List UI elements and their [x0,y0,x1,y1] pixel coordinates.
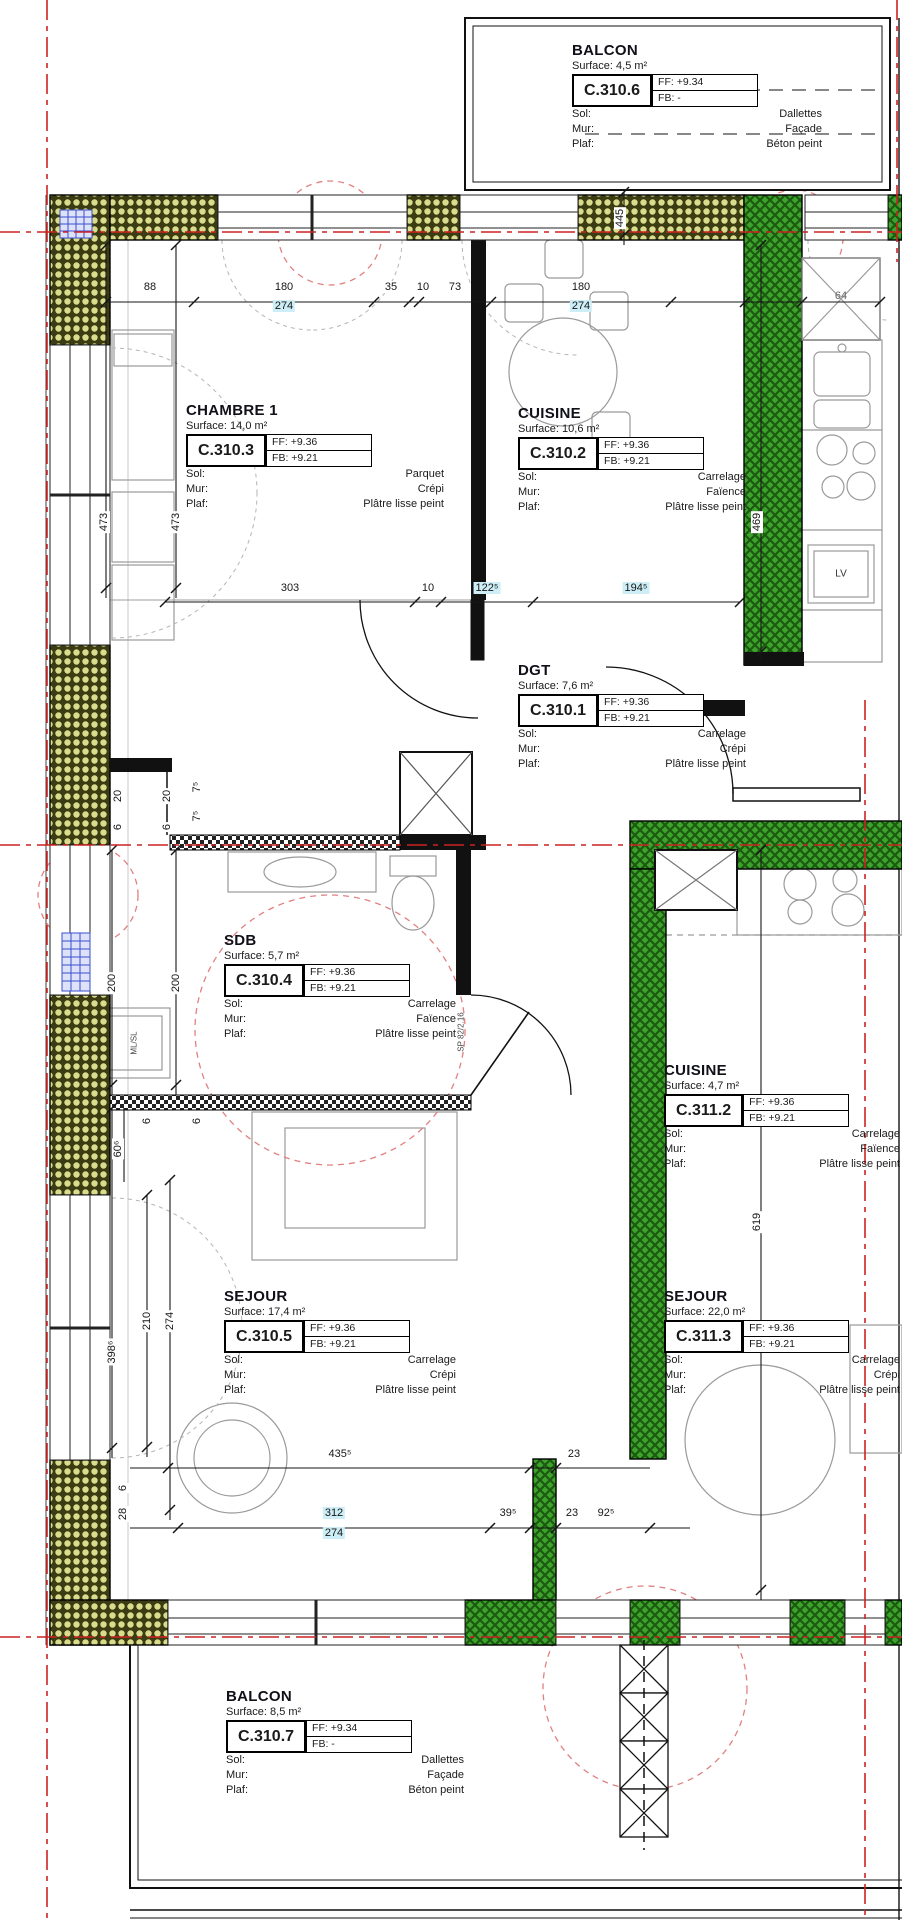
room-card-sdb: SDB Surface: 5,7 m² C.310.4 FF: +9.36FB:… [224,932,456,1042]
dim-left: 274 [164,1310,176,1332]
dim-left: 60⁶ [112,1139,124,1160]
mur-label: Mur: [224,1012,246,1027]
room-surface: Surface: 22,0 m² [664,1306,900,1318]
plaf-value: Béton peint [408,1783,464,1798]
plaf-value: Plâtre lisse peint [819,1383,900,1398]
room-surface: Surface: 14,0 m² [186,420,444,432]
dim-left: 6 [117,1483,129,1493]
mur-label: Mur: [664,1368,686,1383]
room-card-dgt: DGT Surface: 7,6 m² C.310.1 FF: +9.36FB:… [518,662,746,772]
dim-bottom-lower: 23 [564,1507,580,1519]
plaf-label: Plaf: [224,1027,246,1042]
dim-right: 469 [751,511,763,533]
room-card-cuisine-311: CUISINE Surface: 4,7 m² C.311.2 FF: +9.3… [664,1062,900,1172]
room-card-sejour-310: SEJOUR Surface: 17,4 m² C.310.5 FF: +9.3… [224,1288,456,1398]
dim-top: 180 [570,281,592,293]
dim-top: 88 [142,281,158,293]
room-levels: FF: +9.36FB: +9.21 [304,1320,410,1353]
room-code: C.310.7 [226,1720,306,1753]
washer-label: ML/SL [130,1031,139,1054]
room-levels: FF: +9.34FB: - [652,74,758,107]
room-card-cuisine-310: CUISINE Surface: 10,6 m² C.310.2 FF: +9.… [518,405,746,515]
sol-label: Sol: [186,467,205,482]
dim-left: 6 [141,1116,153,1126]
mur-value: Faïence [860,1142,900,1157]
mur-label: Mur: [224,1368,246,1383]
sol-label: Sol: [664,1353,683,1368]
dim-top: 180 [273,281,295,293]
room-name: SEJOUR [224,1288,456,1305]
room-name: DGT [518,662,746,679]
sol-label: Sol: [664,1127,683,1142]
dim-right: 619 [751,1211,763,1233]
room-card-balcon-bottom: BALCON Surface: 8,5 m² C.310.7 FF: +9.34… [226,1688,464,1798]
plaf-value: Plâtre lisse peint [363,497,444,512]
room-levels: FF: +9.36FB: +9.21 [743,1320,849,1353]
room-surface: Surface: 10,6 m² [518,423,746,435]
room-name: CUISINE [664,1062,900,1079]
room-name: CHAMBRE 1 [186,402,444,419]
sol-label: Sol: [518,470,537,485]
dim-top: 73 [447,281,463,293]
dishwasher-label: LV [835,569,847,580]
mur-value: Faïence [706,485,746,500]
plaf-value: Plâtre lisse peint [375,1027,456,1042]
dim-bottom-upper: 435⁵ [327,1448,354,1460]
room-surface: Surface: 8,5 m² [226,1706,464,1718]
dim-bottom-lower: 274 [323,1527,345,1539]
room-levels: FF: +9.36FB: +9.21 [266,434,372,467]
mur-value: Crépi [720,742,746,757]
plaf-label: Plaf: [664,1157,686,1172]
plaf-value: Plâtre lisse peint [665,500,746,515]
dim-middle: 10 [420,582,436,594]
mur-value: Crépi [874,1368,900,1383]
room-code: C.310.6 [572,74,652,107]
sol-value: Parquet [405,467,444,482]
mur-label: Mur: [572,122,594,137]
room-card-chambre1: CHAMBRE 1 Surface: 14,0 m² C.310.3 FF: +… [186,402,444,512]
dim-left: 398⁶ [106,1339,118,1366]
room-levels: FF: +9.36FB: +9.21 [598,437,704,470]
sol-label: Sol: [224,997,243,1012]
sol-label: Sol: [572,107,591,122]
dim-left: 473 [170,511,182,533]
mur-value: Crépi [430,1368,456,1383]
mur-label: Mur: [518,742,540,757]
room-surface: Surface: 17,4 m² [224,1306,456,1318]
mur-label: Mur: [664,1142,686,1157]
sol-value: Carrelage [698,727,746,742]
room-surface: Surface: 4,7 m² [664,1080,900,1092]
dim-left: 20 [161,788,173,804]
room-code: C.311.3 [664,1320,743,1353]
mur-value: Crépi [418,482,444,497]
plaf-value: Plâtre lisse peint [665,757,746,772]
sol-value: Carrelage [698,470,746,485]
dim-left: 20 [112,788,124,804]
sol-value: Carrelage [852,1127,900,1142]
sol-label: Sol: [224,1353,243,1368]
dim-middle: 194⁵ [623,582,650,594]
room-surface: Surface: 4,5 m² [572,60,822,72]
dim-left: 473 [98,511,110,533]
floor-plan: BALCON Surface: 4,5 m² C.310.6 FF: +9.34… [0,0,902,1920]
plaf-value: Plâtre lisse peint [375,1383,456,1398]
room-levels: FF: +9.36FB: +9.21 [743,1094,849,1127]
dim-left: 200 [170,972,182,994]
room-code: C.310.2 [518,437,598,470]
text-overlay: BALCON Surface: 4,5 m² C.310.6 FF: +9.34… [0,0,902,1920]
plaf-label: Plaf: [664,1383,686,1398]
sol-value: Carrelage [408,1353,456,1368]
dim-top: 274 [570,300,592,312]
room-code: C.310.1 [518,694,598,727]
dim-left: 210 [141,1310,153,1332]
dim-left: 6 [161,822,173,832]
plaf-label: Plaf: [224,1383,246,1398]
dim-left: 6 [191,1116,203,1126]
room-card-balcon-top: BALCON Surface: 4,5 m² C.310.6 FF: +9.34… [572,42,822,152]
mur-label: Mur: [226,1768,248,1783]
room-code: C.311.2 [664,1094,743,1127]
mur-value: Faïence [416,1012,456,1027]
room-levels: FF: +9.34FB: - [306,1720,412,1753]
plaf-value: Plâtre lisse peint [819,1157,900,1172]
dim-top: 10 [415,281,431,293]
room-surface: Surface: 5,7 m² [224,950,456,962]
dim-left: 6 [112,822,124,832]
sol-value: Carrelage [852,1353,900,1368]
mur-value: Façade [785,122,822,137]
dim-bottom-lower: 312 [323,1507,345,1519]
dim-top: 274 [273,300,295,312]
dim-right: 445 [614,207,626,229]
sol-value: Dallettes [421,1753,464,1768]
dim-bottom-lower: 39⁵ [498,1507,519,1519]
room-card-sejour-311: SEJOUR Surface: 22,0 m² C.311.3 FF: +9.3… [664,1288,900,1398]
sol-label: Sol: [518,727,537,742]
dim-left: 28 [117,1506,129,1522]
dim-middle: 303 [279,582,301,594]
dim-middle: 122⁵ [474,582,501,594]
plaf-label: Plaf: [186,497,208,512]
dim-left: 7⁵ [191,809,203,824]
mur-value: Façade [427,1768,464,1783]
sol-label: Sol: [226,1753,245,1768]
dim-top: 64 [833,290,849,302]
plaf-label: Plaf: [518,757,540,772]
mur-label: Mur: [518,485,540,500]
room-name: BALCON [226,1688,464,1705]
sdb-door-label: SP 82/2.16 [457,1012,466,1051]
dim-bottom-upper: 23 [566,1448,582,1460]
room-name: SDB [224,932,456,949]
dim-top: 35 [383,281,399,293]
room-code: C.310.3 [186,434,266,467]
plaf-label: Plaf: [572,137,594,152]
room-name: SEJOUR [664,1288,900,1305]
sol-value: Carrelage [408,997,456,1012]
room-name: CUISINE [518,405,746,422]
dim-left: 7⁵ [191,780,203,795]
room-levels: FF: +9.36FB: +9.21 [304,964,410,997]
plaf-value: Béton peint [766,137,822,152]
plaf-label: Plaf: [226,1783,248,1798]
room-name: BALCON [572,42,822,59]
room-surface: Surface: 7,6 m² [518,680,746,692]
dim-left: 200 [106,972,118,994]
plaf-label: Plaf: [518,500,540,515]
sol-value: Dallettes [779,107,822,122]
room-code: C.310.5 [224,1320,304,1353]
room-code: C.310.4 [224,964,304,997]
room-levels: FF: +9.36FB: +9.21 [598,694,704,727]
mur-label: Mur: [186,482,208,497]
dim-bottom-lower: 92⁵ [596,1507,617,1519]
